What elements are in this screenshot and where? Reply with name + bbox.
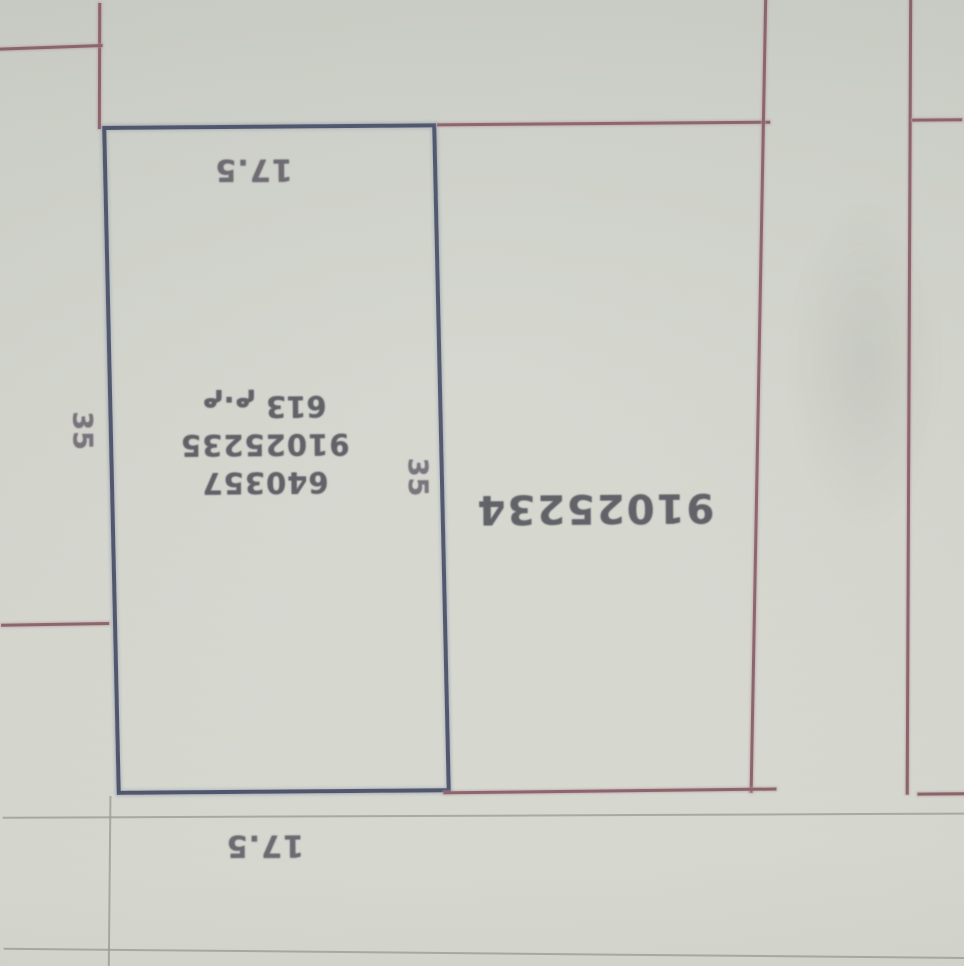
street-line-left-vertical: [108, 796, 112, 966]
main-plot-text-block: 640357 91025235 613 م.م: [149, 387, 380, 503]
main-plot-area-label: 613 م.م: [149, 387, 379, 427]
adjacent-plot-top-boundary: [437, 121, 770, 127]
adjacent-plot-right-boundary: [750, 0, 768, 793]
far-plot-top-boundary: [912, 118, 962, 121]
adjacent-plot-parcel-number: 91025234: [494, 484, 714, 532]
street-line-upper: [3, 813, 964, 819]
street-line-lower: [4, 948, 964, 959]
main-plot-ref-number: 640357: [150, 463, 380, 503]
adjacent-plot-bottom-boundary: [443, 788, 776, 795]
boundary-line-left-vertical: [98, 3, 101, 129]
plot-plan-photo: 17.5 17.5 35 35 640357 91025235 613 م.م …: [0, 0, 964, 966]
plan-sheet: 17.5 17.5 35 35 640357 91025235 613 م.م …: [0, 0, 964, 966]
boundary-line-top-left-horizontal: [0, 44, 103, 51]
dimension-label-top: 17.5: [203, 151, 303, 187]
boundary-line-left-mid-horizontal: [1, 622, 109, 627]
dimension-label-bottom: 17.5: [215, 827, 315, 863]
far-plot-bottom-boundary: [917, 792, 964, 795]
dimension-label-right: 35: [393, 453, 441, 501]
main-plot-parcel-number: 91025235: [150, 425, 380, 465]
dimension-label-left: 35: [57, 407, 105, 455]
